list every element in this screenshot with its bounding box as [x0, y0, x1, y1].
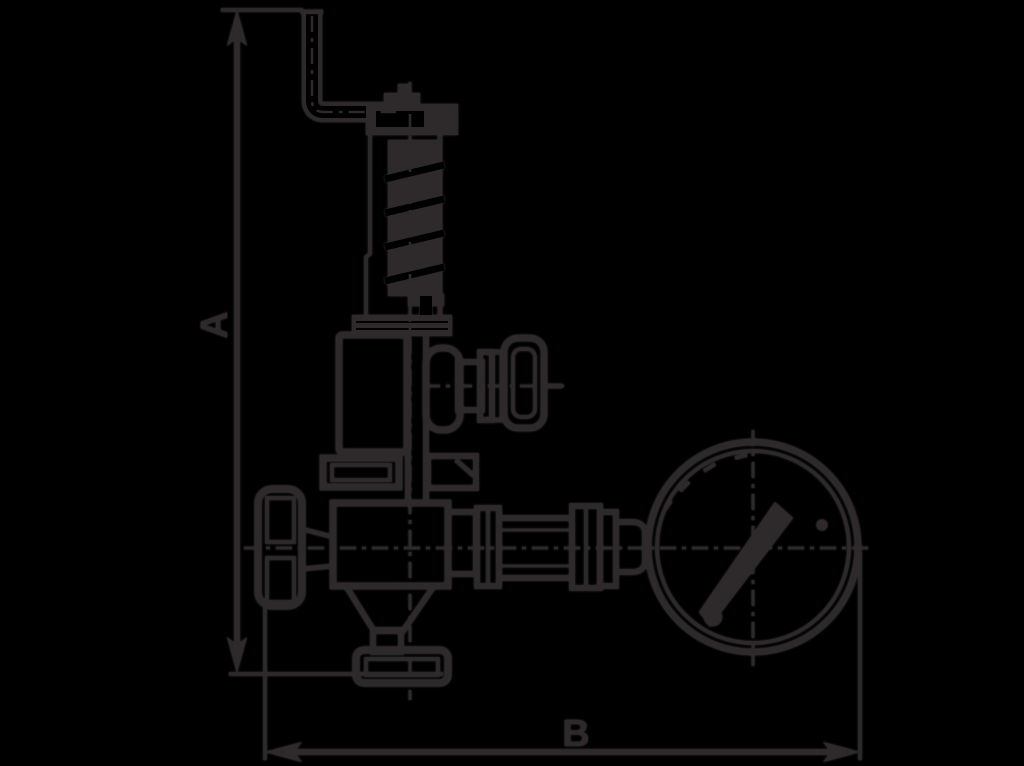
mid-flange — [323, 456, 476, 488]
outlet-handwheel-branch — [426, 338, 562, 430]
bonnet-cap-nut — [366, 84, 458, 135]
gauge-screw — [817, 520, 828, 531]
spring-bonnet — [352, 134, 452, 336]
centerline-lever — [312, 16, 396, 112]
dimension-label-B: B — [562, 713, 589, 755]
spring-chamber — [339, 335, 426, 502]
valve-dimensional-drawing: A B — [0, 0, 1024, 766]
dimension-label-A: A — [194, 311, 236, 338]
inlet-flange — [356, 650, 448, 683]
needle-hub — [704, 608, 722, 626]
valve-body — [333, 503, 476, 683]
spring-coil — [385, 140, 444, 318]
outlet-cone — [346, 586, 434, 631]
outlet-handwheel — [504, 338, 544, 428]
drawing-canvas: A B — [0, 0, 1024, 766]
